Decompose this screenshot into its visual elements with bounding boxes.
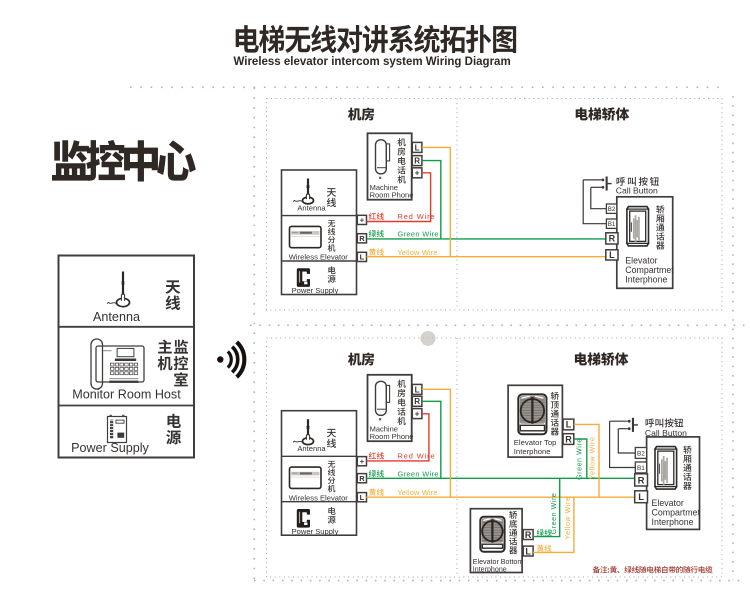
svg-text:B1: B1 [637, 465, 645, 472]
svg-text:Monitor Room Host: Monitor Room Host [72, 388, 181, 402]
svg-text:L: L [525, 546, 531, 556]
svg-text:Power Supply: Power Supply [292, 527, 339, 536]
svg-text:Wireless Elevator: Wireless Elevator [289, 493, 349, 502]
svg-text:L: L [360, 493, 365, 502]
svg-text:R: R [359, 234, 365, 243]
svg-text:Interphone: Interphone [652, 517, 694, 527]
svg-text:Power Supply: Power Supply [71, 441, 149, 455]
svg-text:Wireless elevator intercom sys: Wireless elevator intercom system Wiring… [234, 56, 511, 68]
svg-text:+: + [360, 457, 365, 466]
svg-text:B1: B1 [608, 221, 616, 228]
svg-text:Red Wire: Red Wire [398, 452, 436, 461]
svg-text:+: + [415, 169, 420, 178]
svg-text:L: L [609, 250, 615, 260]
svg-text:Yellow Wire: Yellow Wire [398, 248, 438, 257]
svg-text:Antenna: Antenna [297, 203, 326, 212]
svg-text:Green Wire: Green Wire [398, 470, 439, 479]
svg-text:Red Wire: Red Wire [398, 212, 436, 221]
svg-text:Power Supply: Power Supply [292, 286, 339, 295]
svg-text:B2: B2 [608, 206, 616, 213]
svg-text:Green Wire: Green Wire [577, 438, 584, 480]
svg-text:Compartmet: Compartmet [652, 507, 701, 517]
svg-text:L: L [415, 385, 420, 394]
svg-text:Elevator: Elevator [652, 498, 684, 508]
svg-text:L: L [638, 492, 644, 503]
svg-text:R: R [609, 234, 616, 244]
svg-text:Room Phone: Room Phone [370, 432, 414, 441]
svg-text:Interphone: Interphone [625, 275, 667, 285]
svg-text:L: L [415, 143, 420, 152]
svg-text:+: + [360, 216, 365, 225]
svg-text:Elevator Top: Elevator Top [514, 438, 557, 447]
svg-text:R: R [638, 475, 645, 486]
svg-text:R: R [414, 397, 420, 406]
svg-text:L: L [566, 420, 572, 430]
svg-text:R: R [359, 474, 365, 483]
svg-text:Green Wire: Green Wire [551, 493, 558, 535]
svg-text:Interphone: Interphone [514, 447, 551, 456]
svg-text:+: + [415, 409, 420, 418]
svg-text:B2: B2 [637, 450, 645, 457]
svg-text:R: R [525, 530, 532, 540]
svg-text:R: R [414, 156, 420, 165]
svg-text:Elevator: Elevator [625, 256, 657, 266]
svg-text:L: L [360, 253, 365, 262]
svg-text:Yellow Wire: Yellow Wire [589, 437, 596, 480]
svg-text:Yellow Wire: Yellow Wire [565, 497, 572, 540]
svg-text:Interphone: Interphone [473, 565, 507, 573]
svg-text:R: R [565, 434, 572, 444]
svg-text:Call Button: Call Button [616, 185, 658, 195]
svg-text:Antenna: Antenna [93, 310, 140, 324]
svg-text:Green Wire: Green Wire [398, 230, 439, 239]
svg-text:Yellow Wire: Yellow Wire [398, 488, 438, 497]
svg-text:Wireless Elevator: Wireless Elevator [289, 253, 349, 262]
svg-text:Room Phone: Room Phone [370, 191, 414, 200]
svg-text:Compartmet: Compartmet [625, 265, 674, 275]
svg-text:Antenna: Antenna [297, 444, 326, 453]
